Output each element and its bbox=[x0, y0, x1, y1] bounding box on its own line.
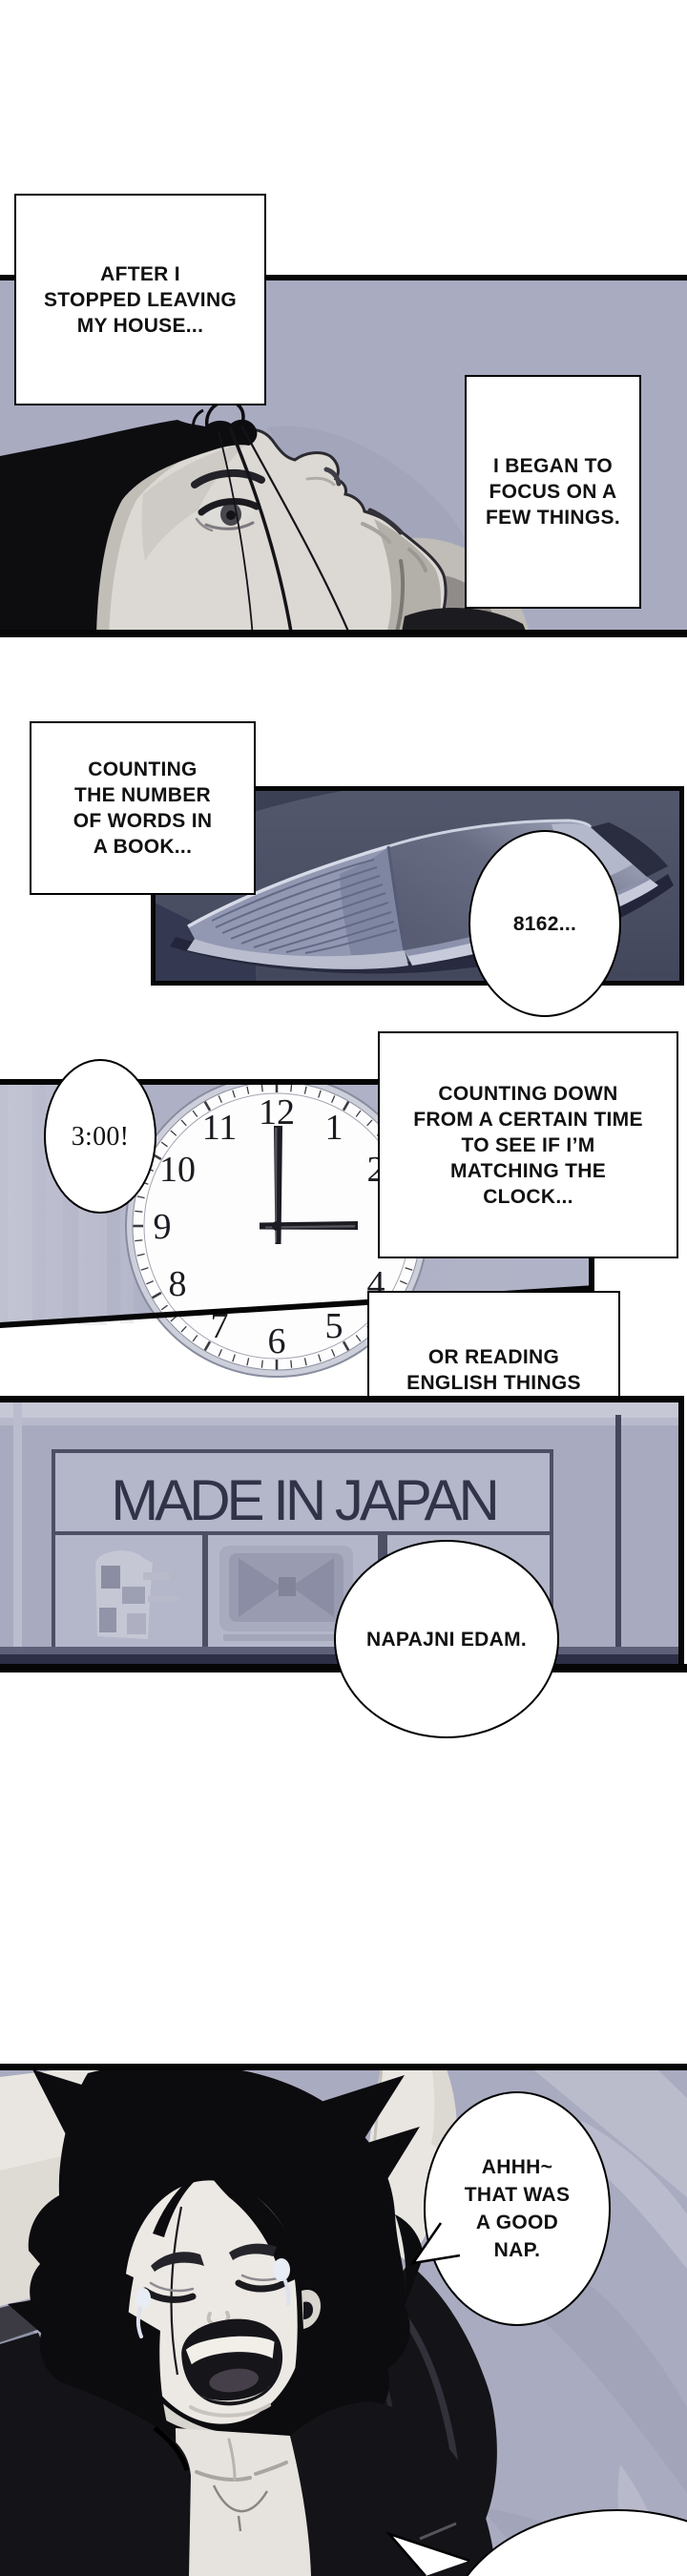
svg-text:11: 11 bbox=[202, 1108, 238, 1148]
svg-text:MADE IN JAPAN: MADE IN JAPAN bbox=[111, 1468, 496, 1532]
svg-text:5: 5 bbox=[325, 1306, 343, 1346]
svg-text:10: 10 bbox=[159, 1150, 196, 1190]
svg-text:8: 8 bbox=[169, 1264, 187, 1304]
svg-text:6: 6 bbox=[268, 1321, 286, 1361]
svg-text:9: 9 bbox=[154, 1207, 172, 1247]
svg-text:1: 1 bbox=[325, 1108, 343, 1148]
